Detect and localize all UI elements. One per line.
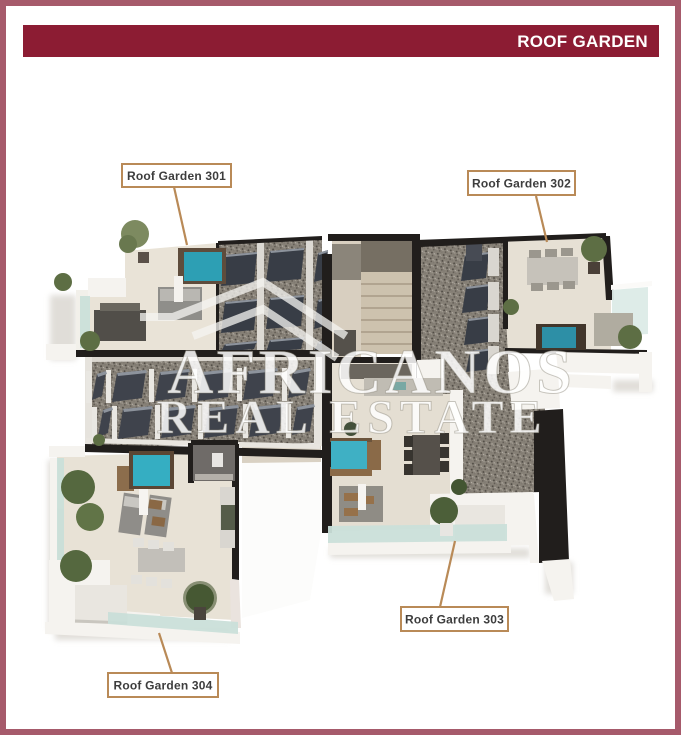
svg-text:Roof Garden 303: Roof Garden 303 <box>405 613 504 627</box>
svg-text:Roof Garden 304: Roof Garden 304 <box>113 679 212 693</box>
svg-text:Roof Garden 302: Roof Garden 302 <box>472 177 571 191</box>
svg-text:Roof Garden 301: Roof Garden 301 <box>127 169 226 183</box>
svg-text:REAL ESTATE: REAL ESTATE <box>156 391 547 444</box>
